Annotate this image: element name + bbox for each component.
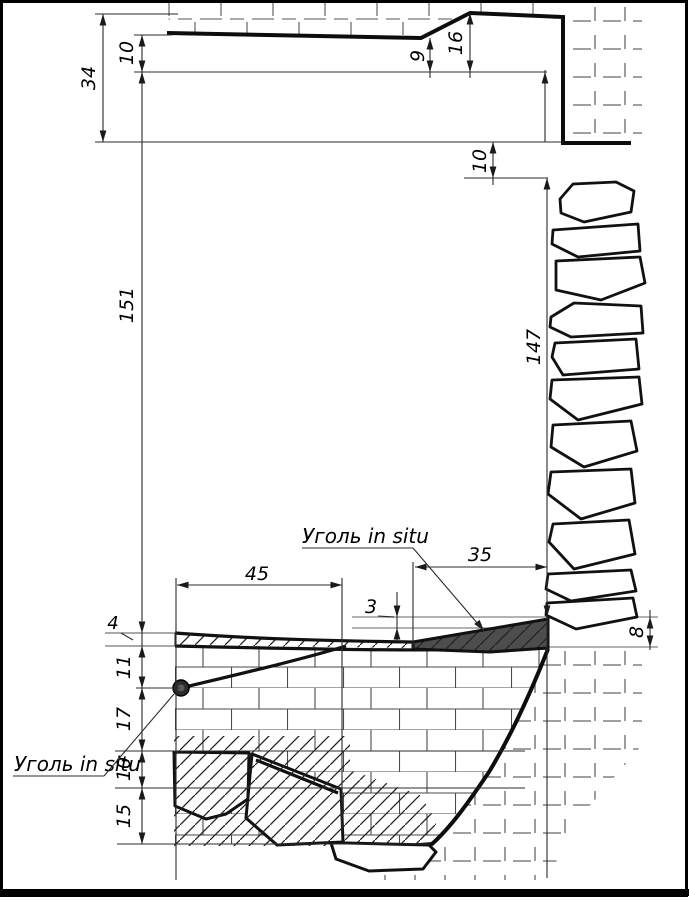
dim-34: 34 xyxy=(78,66,100,90)
dim-35: 35 xyxy=(468,544,492,566)
dim-3: 3 xyxy=(365,596,377,618)
dim-15: 15 xyxy=(113,804,135,828)
stone xyxy=(550,303,643,337)
dim-11: 11 xyxy=(113,655,135,679)
dim-45: 45 xyxy=(245,563,269,585)
coal-in-situ-upper-label: Уголь in situ xyxy=(302,524,429,548)
drawing-page: 34 10 9 16 10 151 147 45 35 3 8 4 11 17 … xyxy=(0,0,689,900)
dim-10-top: 10 xyxy=(116,41,138,65)
dim-4: 4 xyxy=(107,613,118,634)
dim-17: 17 xyxy=(113,707,135,731)
dim-147: 147 xyxy=(523,329,545,365)
stone xyxy=(552,224,640,257)
dim-10-right: 10 xyxy=(469,149,491,173)
stone xyxy=(552,339,639,375)
dim-8: 8 xyxy=(626,626,648,638)
top-right-rock-masonry xyxy=(566,3,642,141)
dim-16: 16 xyxy=(445,31,467,55)
dim-151: 151 xyxy=(116,287,138,323)
dim-9: 9 xyxy=(407,50,429,62)
technical-drawing: 34 10 9 16 10 151 147 45 35 3 8 4 11 17 … xyxy=(0,0,689,900)
